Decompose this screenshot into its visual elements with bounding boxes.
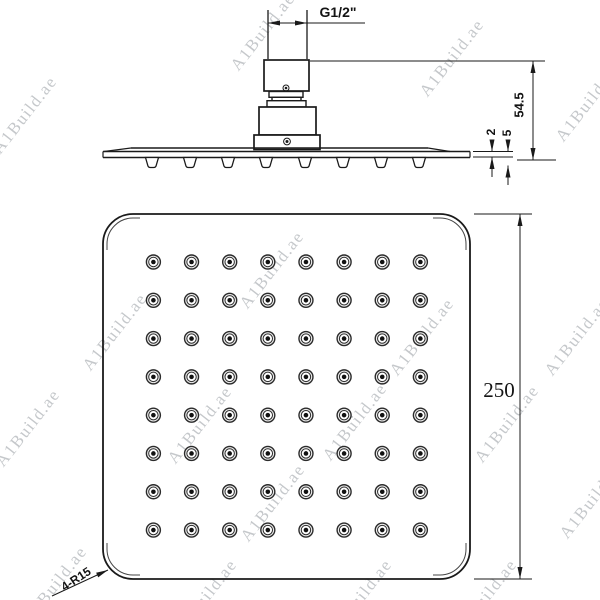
spray-nozzle: [223, 370, 237, 384]
spray-nozzle: [299, 408, 313, 422]
spray-nozzle: [337, 485, 351, 499]
spray-nozzle: [146, 485, 160, 499]
spray-nozzle: [261, 446, 275, 460]
spray-nozzle: [261, 523, 275, 537]
technical-drawing-canvas: A1Build.aeA1Build.aeA1Build.aeA1Build.ae…: [0, 0, 600, 600]
spray-nozzle: [413, 332, 427, 346]
set-screw-lower-dot: [286, 140, 289, 143]
spray-nozzle: [185, 485, 199, 499]
side-nozzle: [375, 158, 388, 168]
spray-nozzle: [185, 293, 199, 307]
spray-nozzle: [413, 523, 427, 537]
spray-nozzle: [375, 293, 389, 307]
nozzle-height-label: 5: [500, 129, 514, 136]
spray-nozzle: [299, 293, 313, 307]
set-screw-upper-dot: [285, 87, 288, 90]
spray-nozzle: [261, 485, 275, 499]
connector-collar-band-3: [267, 101, 306, 107]
spray-nozzle: [375, 332, 389, 346]
spray-nozzle: [185, 523, 199, 537]
spray-nozzle: [223, 255, 237, 269]
thread-size-label: G1/2": [320, 4, 357, 20]
spray-nozzle: [185, 332, 199, 346]
spray-nozzle: [146, 370, 160, 384]
spray-nozzle: [146, 293, 160, 307]
spray-nozzle: [413, 485, 427, 499]
side-nozzle: [413, 158, 426, 168]
spray-nozzle: [375, 523, 389, 537]
spray-nozzle: [146, 332, 160, 346]
spray-nozzle: [375, 485, 389, 499]
spray-nozzle: [337, 332, 351, 346]
spray-nozzle: [185, 370, 199, 384]
spray-nozzle: [299, 332, 313, 346]
bottom-view: 250 4-R15: [52, 214, 532, 596]
spray-nozzle: [261, 332, 275, 346]
spray-nozzle: [337, 523, 351, 537]
connector-collar-band-1: [269, 92, 303, 98]
side-nozzle: [337, 158, 350, 168]
spray-nozzle: [261, 255, 275, 269]
spray-nozzle: [261, 408, 275, 422]
spray-nozzle: [413, 408, 427, 422]
spray-nozzle: [223, 485, 237, 499]
corner-radius-label: 4-R15: [58, 564, 93, 594]
spray-nozzle: [413, 370, 427, 384]
spray-nozzle: [185, 408, 199, 422]
spray-nozzle: [337, 293, 351, 307]
spray-nozzle: [299, 255, 313, 269]
side-view: G1/2": [103, 4, 556, 185]
spray-nozzle: [223, 293, 237, 307]
spray-nozzle: [337, 255, 351, 269]
side-nozzle: [184, 158, 197, 168]
width-dimension-label: 250: [483, 378, 515, 402]
spray-nozzle: [223, 523, 237, 537]
spray-nozzle: [299, 446, 313, 460]
spray-nozzle: [375, 446, 389, 460]
spray-nozzle: [223, 408, 237, 422]
spray-nozzle: [146, 408, 160, 422]
spray-nozzle: [413, 293, 427, 307]
spray-nozzle: [185, 255, 199, 269]
spray-nozzle: [337, 446, 351, 460]
side-nozzle: [222, 158, 235, 168]
spray-nozzle: [375, 408, 389, 422]
spray-nozzle: [185, 446, 199, 460]
spray-nozzle: [413, 446, 427, 460]
spray-nozzle: [146, 523, 160, 537]
connector-upper-nut: [264, 60, 309, 91]
spray-nozzle: [223, 446, 237, 460]
spray-nozzle: [261, 293, 275, 307]
spray-nozzle: [261, 370, 275, 384]
spray-nozzle: [299, 370, 313, 384]
side-nozzle-row: [146, 158, 426, 168]
side-nozzle: [260, 158, 273, 168]
shower-head-drawing: G1/2": [0, 0, 600, 600]
height-dimension-label: 54.5: [512, 92, 527, 117]
spray-nozzle: [146, 446, 160, 460]
plate-thickness-label: 2: [484, 128, 498, 135]
side-nozzle: [146, 158, 159, 168]
connector-lower-body: [259, 107, 316, 135]
spray-nozzle: [337, 370, 351, 384]
spray-nozzle: [146, 255, 160, 269]
spray-nozzle: [223, 332, 237, 346]
spray-nozzle: [299, 485, 313, 499]
spray-nozzle: [375, 370, 389, 384]
side-nozzle: [299, 158, 312, 168]
spray-nozzle: [413, 255, 427, 269]
spray-nozzle: [337, 408, 351, 422]
nozzle-grid: [146, 255, 427, 537]
spray-nozzle: [299, 523, 313, 537]
spray-nozzle: [375, 255, 389, 269]
